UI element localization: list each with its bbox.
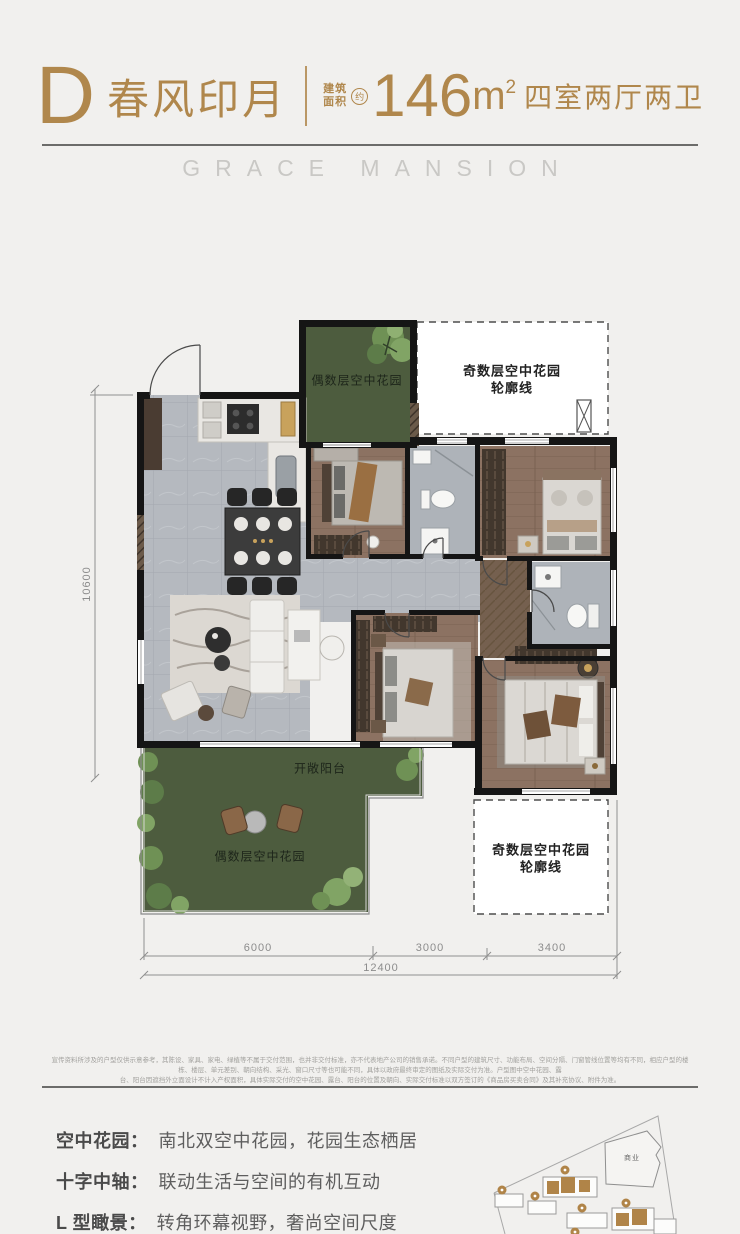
feature-l-view: L 型瞰景：转角环幕视野，奢尚空间尺度 [56,1209,418,1234]
feature-cross-axis: 十字中轴：联动生活与空间的有机互动 [56,1168,418,1194]
feature-list: 空中花园：南北双空中花园，花园生态栖居 十字中轴：联动生活与空间的有机互动 L … [56,1127,418,1234]
area-prefix-line2: 面积 [323,96,347,109]
disclaimer-line1: 宣传资料所涉及的户型仅供示意参考，其陈设、家具、家电、绿植等不属于交付范围，也并… [48,1056,692,1076]
bottom-garden-label: 偶数层空中花园 [214,848,305,865]
feature-desc: 联动生活与空间的有机互动 [159,1172,381,1192]
feature-sky-garden: 空中花园：南北双空中花园，花园生态栖居 [56,1127,418,1153]
top-outline-label-line2: 轮廓线 [491,378,533,397]
bottom-rule [42,1086,698,1088]
approx-circle: 约 [351,88,368,105]
commercial-label: 商业 [624,1153,640,1163]
area-exponent: 2 [506,77,517,98]
header-divider [305,66,307,126]
feature-desc: 南北双空中花园，花园生态栖居 [159,1131,418,1151]
header: D 春风印月 建筑 面积 约 146 m2 四室两厅两卫 [0,48,740,144]
area-prefix: 建筑 面积 [323,83,347,108]
site-map-drawing [455,1095,740,1234]
bottom-outline-label-line2: 轮廓线 [520,857,562,876]
feature-label: 空中花园： [56,1131,149,1151]
top-rule [42,144,698,146]
column-symbol [577,400,591,432]
balcony-label: 开敞阳台 [294,760,346,777]
area-value: 146 [372,69,472,123]
brand-subtitle: GRACE MANSION [0,155,740,182]
dim-10600: 10600 [81,566,93,602]
dim-12400: 12400 [363,962,399,974]
unit-letter: D [36,59,95,133]
layout-desc: 四室两厅两卫 [524,76,704,116]
floor-plan: 偶数层空中花园 奇数层空中花园 轮廓线 开敞阳台 偶数层空中花园 奇数层空中花园… [85,300,655,1000]
dim-3400: 3400 [538,942,566,954]
area-group: 建筑 面积 约 146 m2 四室两厅两卫 [323,69,704,123]
disclaimer-line2: 台、阳台因遮挡外立面设计不计入产权面积，具体实际交付的空中花园、露台、阳台的位置… [48,1076,692,1086]
feature-label: L 型瞰景： [56,1213,147,1233]
area-prefix-line1: 建筑 [323,83,347,96]
feature-label: 十字中轴： [56,1172,149,1192]
feature-desc: 转角环幕视野，奢尚空间尺度 [157,1213,398,1233]
floor-plan-drawing [85,300,655,1000]
site-map: 商业 [455,1095,740,1234]
poster-page: D 春风印月 建筑 面积 约 146 m2 四室两厅两卫 GRACE MANSI… [0,0,740,1234]
disclaimer: 宣传资料所涉及的户型仅供示意参考，其陈设、家具、家电、绿植等不属于交付范围，也并… [48,1056,692,1086]
top-garden-label: 偶数层空中花园 [311,372,402,389]
unit-name: 春风印月 [107,66,287,127]
dining-table [225,488,300,595]
dim-3000: 3000 [416,942,444,954]
dim-6000: 6000 [244,942,272,954]
area-unit: m2 [472,74,516,119]
